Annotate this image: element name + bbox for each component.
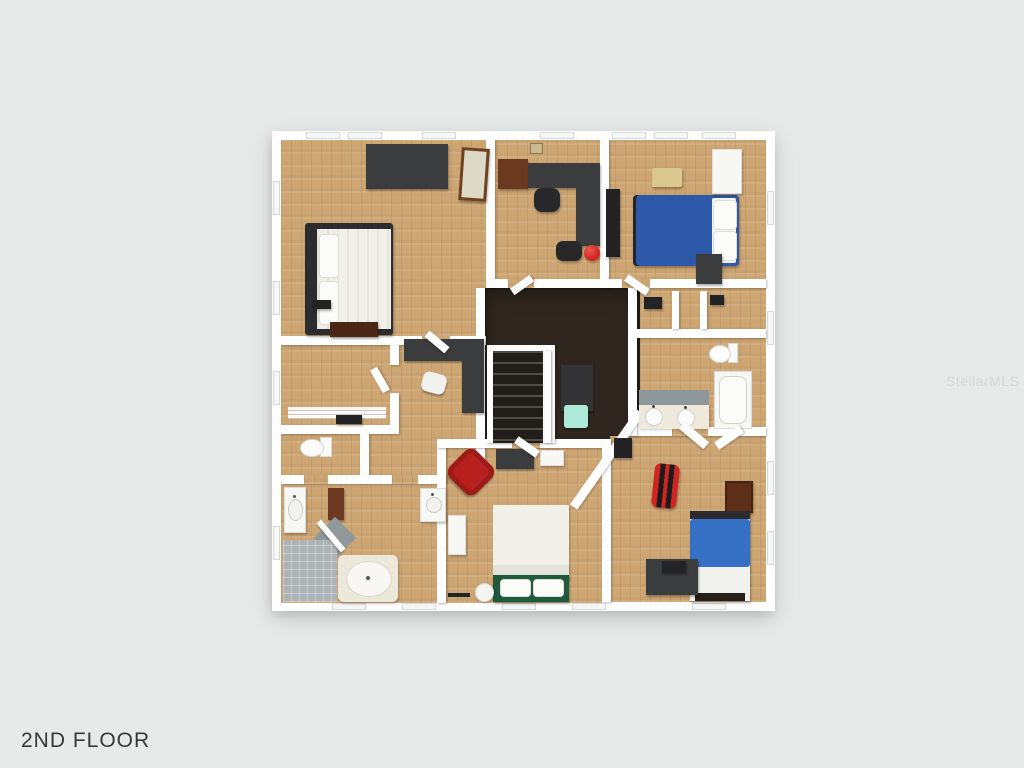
standing-mirror [458,147,490,202]
stairwell [487,345,555,443]
wall-closets-bath2 [637,329,766,338]
floor-plan-render [272,131,775,611]
pillow [500,579,531,597]
tub-drain [366,576,370,580]
nook-desk-return [462,361,484,413]
wall-frame [530,143,543,154]
bed-duvet [690,519,750,567]
sink [645,408,663,426]
wall-closet-divider [672,291,679,329]
bath-cabinet [328,488,344,520]
window [402,603,436,610]
office-chair [534,188,560,212]
vanity [284,487,306,533]
window [767,191,774,225]
faucet [684,406,687,409]
staircase [493,351,543,443]
tub-interior [719,376,747,424]
vanity-backsplash [639,390,709,405]
bedroom2-dresser [696,254,722,284]
toilet-bowl [300,439,324,457]
toilet-bowl [709,345,731,363]
bedroom4-dresser [725,481,753,513]
window [692,603,726,610]
desk-chair [662,561,686,573]
door-opening [304,475,328,484]
door-opening [392,475,418,484]
sink [426,497,442,513]
tiled-shower [283,540,337,602]
bedroom4-bed [690,511,750,601]
teal-side-table [564,405,588,428]
headboard [690,511,750,519]
window [767,461,774,495]
window [273,371,280,405]
wardrobe [712,149,742,194]
sink [288,499,303,521]
window [502,603,536,610]
closet-item [336,415,362,424]
pillow [533,579,564,597]
office-desk-return [576,188,600,246]
master-dresser [366,144,448,189]
bench [652,168,682,187]
floor-label: 2ND FLOOR [21,729,150,753]
bedroom3-headboard [493,575,569,602]
shower-tub [714,371,752,429]
closet-item [710,295,724,305]
window [572,603,606,610]
office-cabinet [498,159,528,189]
exercise-ball [584,245,600,261]
faucet [293,495,296,498]
window [273,526,280,560]
bedroom3-bed [493,505,569,579]
master-bed [305,223,393,335]
footboard-bench [695,593,745,601]
window [612,132,646,139]
gaming-chair [651,463,680,509]
wall-closet-divider [700,291,707,329]
stair-railing [545,351,551,443]
office-desk [528,163,600,188]
window [273,181,280,215]
nightstand [540,450,564,466]
window [422,132,456,139]
window [306,132,340,139]
wall-closet-right [390,345,399,365]
tv-unit [606,189,620,257]
wall-closet-right [390,393,399,426]
faucet [652,405,655,408]
closet-item [644,297,662,309]
wall-closet-bottom [281,425,399,434]
corner-cabinet [614,438,632,458]
vanity [420,488,446,522]
stool [475,583,494,602]
pillow [319,234,339,278]
office-chair [556,241,582,261]
double-vanity [639,405,709,429]
window [332,603,366,610]
window [702,132,736,139]
window [767,311,774,345]
tv [312,300,331,309]
bathtub-surround [338,555,398,602]
window [767,531,774,565]
bedroom2-bed [633,195,739,266]
mls-watermark: StellarMLS [946,373,1019,389]
window [654,132,688,139]
window [348,132,382,139]
media-chest [330,322,378,337]
shelf [448,593,470,597]
dresser [448,515,466,555]
window [540,132,574,139]
faucet [431,493,434,496]
window [273,281,280,315]
pillow [713,200,737,230]
